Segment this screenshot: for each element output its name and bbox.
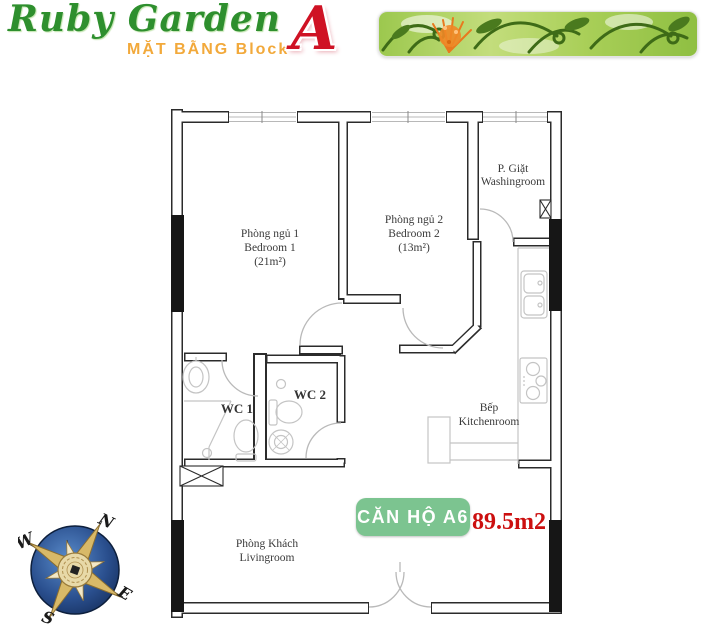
kitchen-counter	[428, 248, 549, 464]
svg-text:Livingroom: Livingroom	[240, 552, 295, 564]
entry-door-arc	[369, 562, 431, 607]
wc1-sink	[183, 357, 209, 393]
svg-text:Washingroom: Washingroom	[481, 176, 545, 188]
svg-text:Bedroom 2: Bedroom 2	[388, 228, 440, 240]
windows	[229, 111, 549, 123]
room-label-wc2: WC 2	[294, 387, 326, 402]
room-label-bedroom1: Phòng ngủ 1 Bedroom 1 (21m²)	[241, 228, 299, 268]
compass-rose-icon: N E S W	[18, 490, 143, 635]
washing-machine	[540, 200, 551, 218]
svg-text:(21m²): (21m²)	[254, 256, 286, 268]
washingroom-door-arc	[480, 209, 513, 242]
wc2-basin	[269, 430, 293, 454]
room-label-wc1: WC 1	[221, 401, 253, 416]
bedroom1-door-arc	[300, 303, 342, 345]
unit-area-label: 89.5m2	[472, 509, 546, 536]
kitchen-sink	[521, 271, 547, 318]
svg-text:P. Giặt: P. Giặt	[498, 163, 529, 175]
page: Ruby Garden MẶT BẰNG Block A	[0, 0, 718, 635]
compass-medallion	[58, 553, 92, 587]
svg-text:Bedroom 1: Bedroom 1	[244, 242, 296, 254]
wc2-door-arc	[306, 423, 341, 458]
svg-text:Phòng Khách: Phòng Khách	[236, 538, 299, 550]
wc1-door-arc	[222, 360, 258, 396]
compass-letter-s: S	[39, 607, 56, 629]
svg-text:Kitchenroom: Kitchenroom	[459, 416, 520, 428]
room-label-livingroom: Phòng Khách Livingroom	[236, 538, 299, 564]
unit-badge: CĂN HỘ A6	[356, 498, 470, 536]
fixtures	[183, 248, 549, 464]
svg-text:Phòng ngủ 2: Phòng ngủ 2	[385, 214, 443, 226]
technical-shaft	[180, 466, 223, 486]
svg-text:(13m²): (13m²)	[398, 242, 430, 254]
room-label-bedroom2: Phòng ngủ 2 Bedroom 2 (13m²)	[385, 214, 443, 254]
svg-text:Phòng ngủ 1: Phòng ngủ 1	[241, 228, 299, 240]
svg-text:Bếp: Bếp	[480, 401, 499, 414]
room-label-kitchen: Bếp Kitchenroom	[459, 401, 520, 428]
bedroom2-door-arc	[403, 308, 443, 348]
room-label-washingroom: P. Giặt Washingroom	[481, 163, 545, 188]
kitchen-stove	[520, 358, 547, 403]
